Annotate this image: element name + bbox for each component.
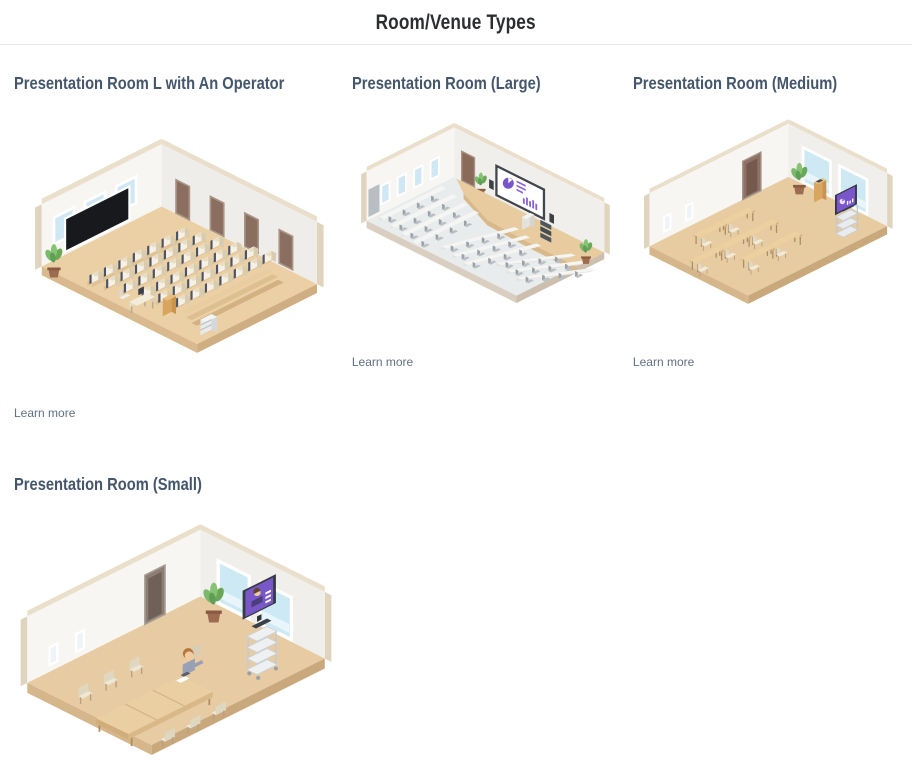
page-header: Room/Venue Types: [0, 0, 912, 45]
room-illustration: [633, 111, 898, 349]
room-illustration: [14, 512, 336, 777]
door: [743, 152, 761, 200]
learn-more-link[interactable]: Learn more: [633, 355, 694, 369]
room-card-operator: Presentation Room L with An Operator: [14, 73, 336, 422]
door: [462, 151, 475, 187]
room-card-large: Presentation Room (Large): [352, 73, 617, 422]
small-room-illustration: [14, 512, 336, 777]
room-title: Presentation Room (Medium): [633, 73, 898, 93]
side-door: [368, 184, 379, 217]
learn-more-link[interactable]: Learn more: [14, 406, 75, 420]
door: [145, 565, 165, 624]
learn-more-link[interactable]: Learn more: [352, 355, 413, 369]
room-illustration: [14, 111, 336, 400]
room-title: Presentation Room L with An Operator: [14, 73, 336, 93]
large-hall-illustration: [352, 111, 617, 349]
room-illustration: [352, 111, 617, 349]
room-title: Presentation Room (Large): [352, 73, 617, 93]
room-venue-types-page: Room/Venue Types Presentation Room L wit…: [0, 0, 912, 777]
room-card-medium: Presentation Room (Medium): [633, 73, 898, 422]
auditorium-illustration: [14, 111, 336, 400]
podium: [814, 178, 826, 202]
room-card-small: Presentation Room (Small): [14, 474, 336, 777]
room-cards-grid: Presentation Room L with An Operator: [0, 45, 912, 777]
room-title: Presentation Room (Small): [14, 474, 336, 494]
page-title: Room/Venue Types: [376, 11, 536, 35]
medium-room-illustration: [633, 111, 898, 349]
